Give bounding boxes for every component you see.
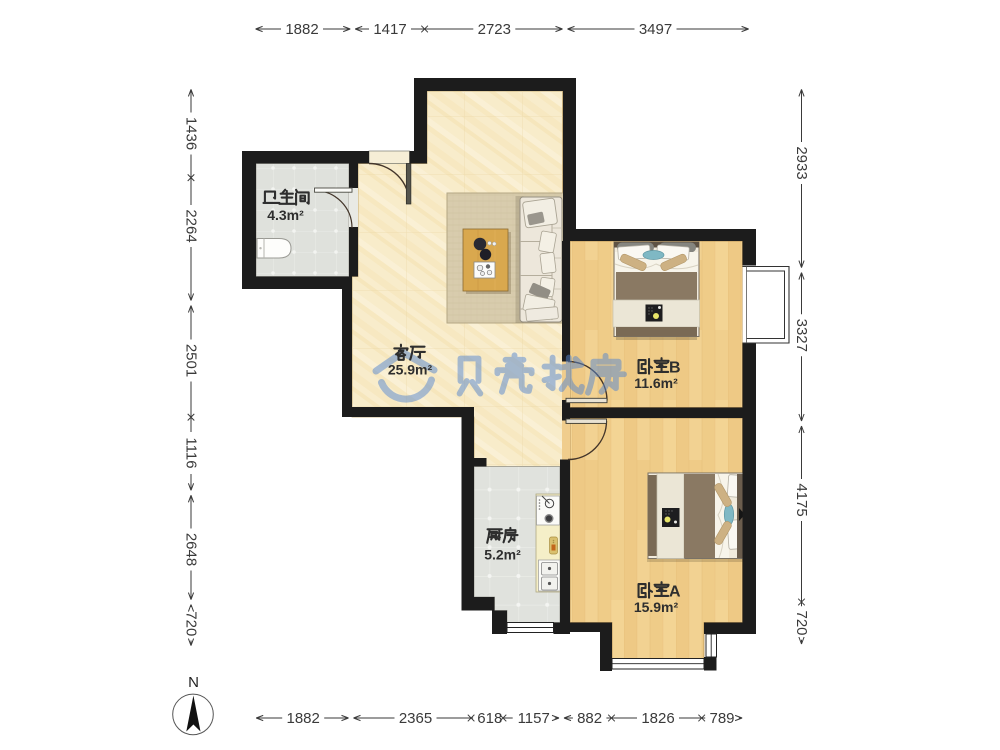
svg-text:789: 789 (709, 710, 734, 727)
svg-text:2933: 2933 (793, 146, 810, 179)
svg-text:882: 882 (577, 710, 602, 727)
svg-text:15.9m²: 15.9m² (634, 599, 679, 615)
svg-text:3497: 3497 (639, 21, 672, 38)
svg-text:N: N (188, 674, 199, 691)
svg-text:2365: 2365 (399, 710, 432, 727)
svg-text:2648: 2648 (183, 533, 200, 566)
svg-text:4175: 4175 (793, 483, 810, 516)
svg-text:1826: 1826 (641, 710, 674, 727)
svg-text:1436: 1436 (183, 117, 200, 150)
svg-text:5.2m²: 5.2m² (484, 547, 521, 563)
svg-text:2501: 2501 (183, 344, 200, 377)
svg-text:11.6m²: 11.6m² (634, 375, 678, 391)
svg-text:1417: 1417 (373, 21, 406, 38)
svg-text:2264: 2264 (183, 209, 200, 242)
svg-text:1882: 1882 (287, 710, 320, 727)
svg-text:2723: 2723 (478, 21, 511, 38)
svg-text:3327: 3327 (793, 319, 810, 352)
svg-text:1157: 1157 (518, 710, 550, 727)
svg-text:A: A (669, 584, 681, 601)
svg-text:4.3m²: 4.3m² (267, 207, 304, 223)
svg-text:1882: 1882 (285, 21, 318, 38)
svg-text:1116: 1116 (183, 437, 200, 468)
svg-text:25.9m²: 25.9m² (388, 362, 433, 378)
svg-text:720: 720 (793, 610, 810, 635)
svg-text:720: 720 (183, 611, 200, 636)
svg-text:B: B (669, 360, 681, 377)
svg-text:618: 618 (477, 710, 502, 727)
